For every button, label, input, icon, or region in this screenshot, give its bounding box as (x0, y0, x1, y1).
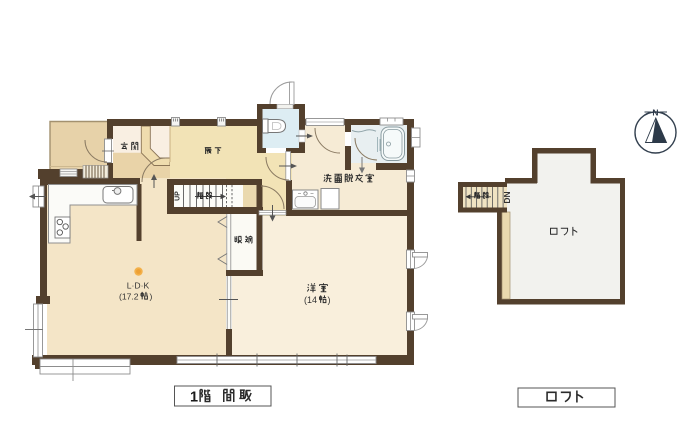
svg-text:UP: UP (175, 191, 182, 201)
svg-text:DN: DN (502, 191, 512, 203)
svg-text:(14: (14 (304, 295, 317, 305)
svg-text:1: 1 (190, 390, 198, 406)
svg-text:(17.2: (17.2 (119, 292, 139, 302)
svg-text:L·D·K: L·D·K (127, 281, 150, 291)
svg-text:): ) (150, 292, 153, 302)
svg-text:): ) (328, 295, 331, 305)
svg-text:N: N (652, 108, 658, 118)
